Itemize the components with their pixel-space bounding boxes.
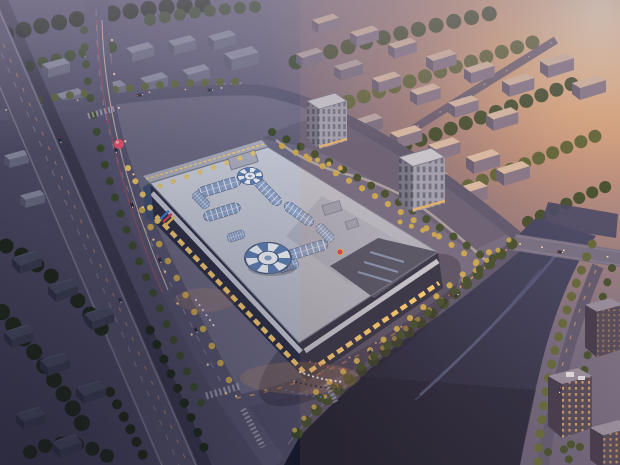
architectural-rendering [0, 0, 620, 465]
rendering-canvas [0, 0, 620, 465]
corner-vignette [0, 0, 620, 465]
